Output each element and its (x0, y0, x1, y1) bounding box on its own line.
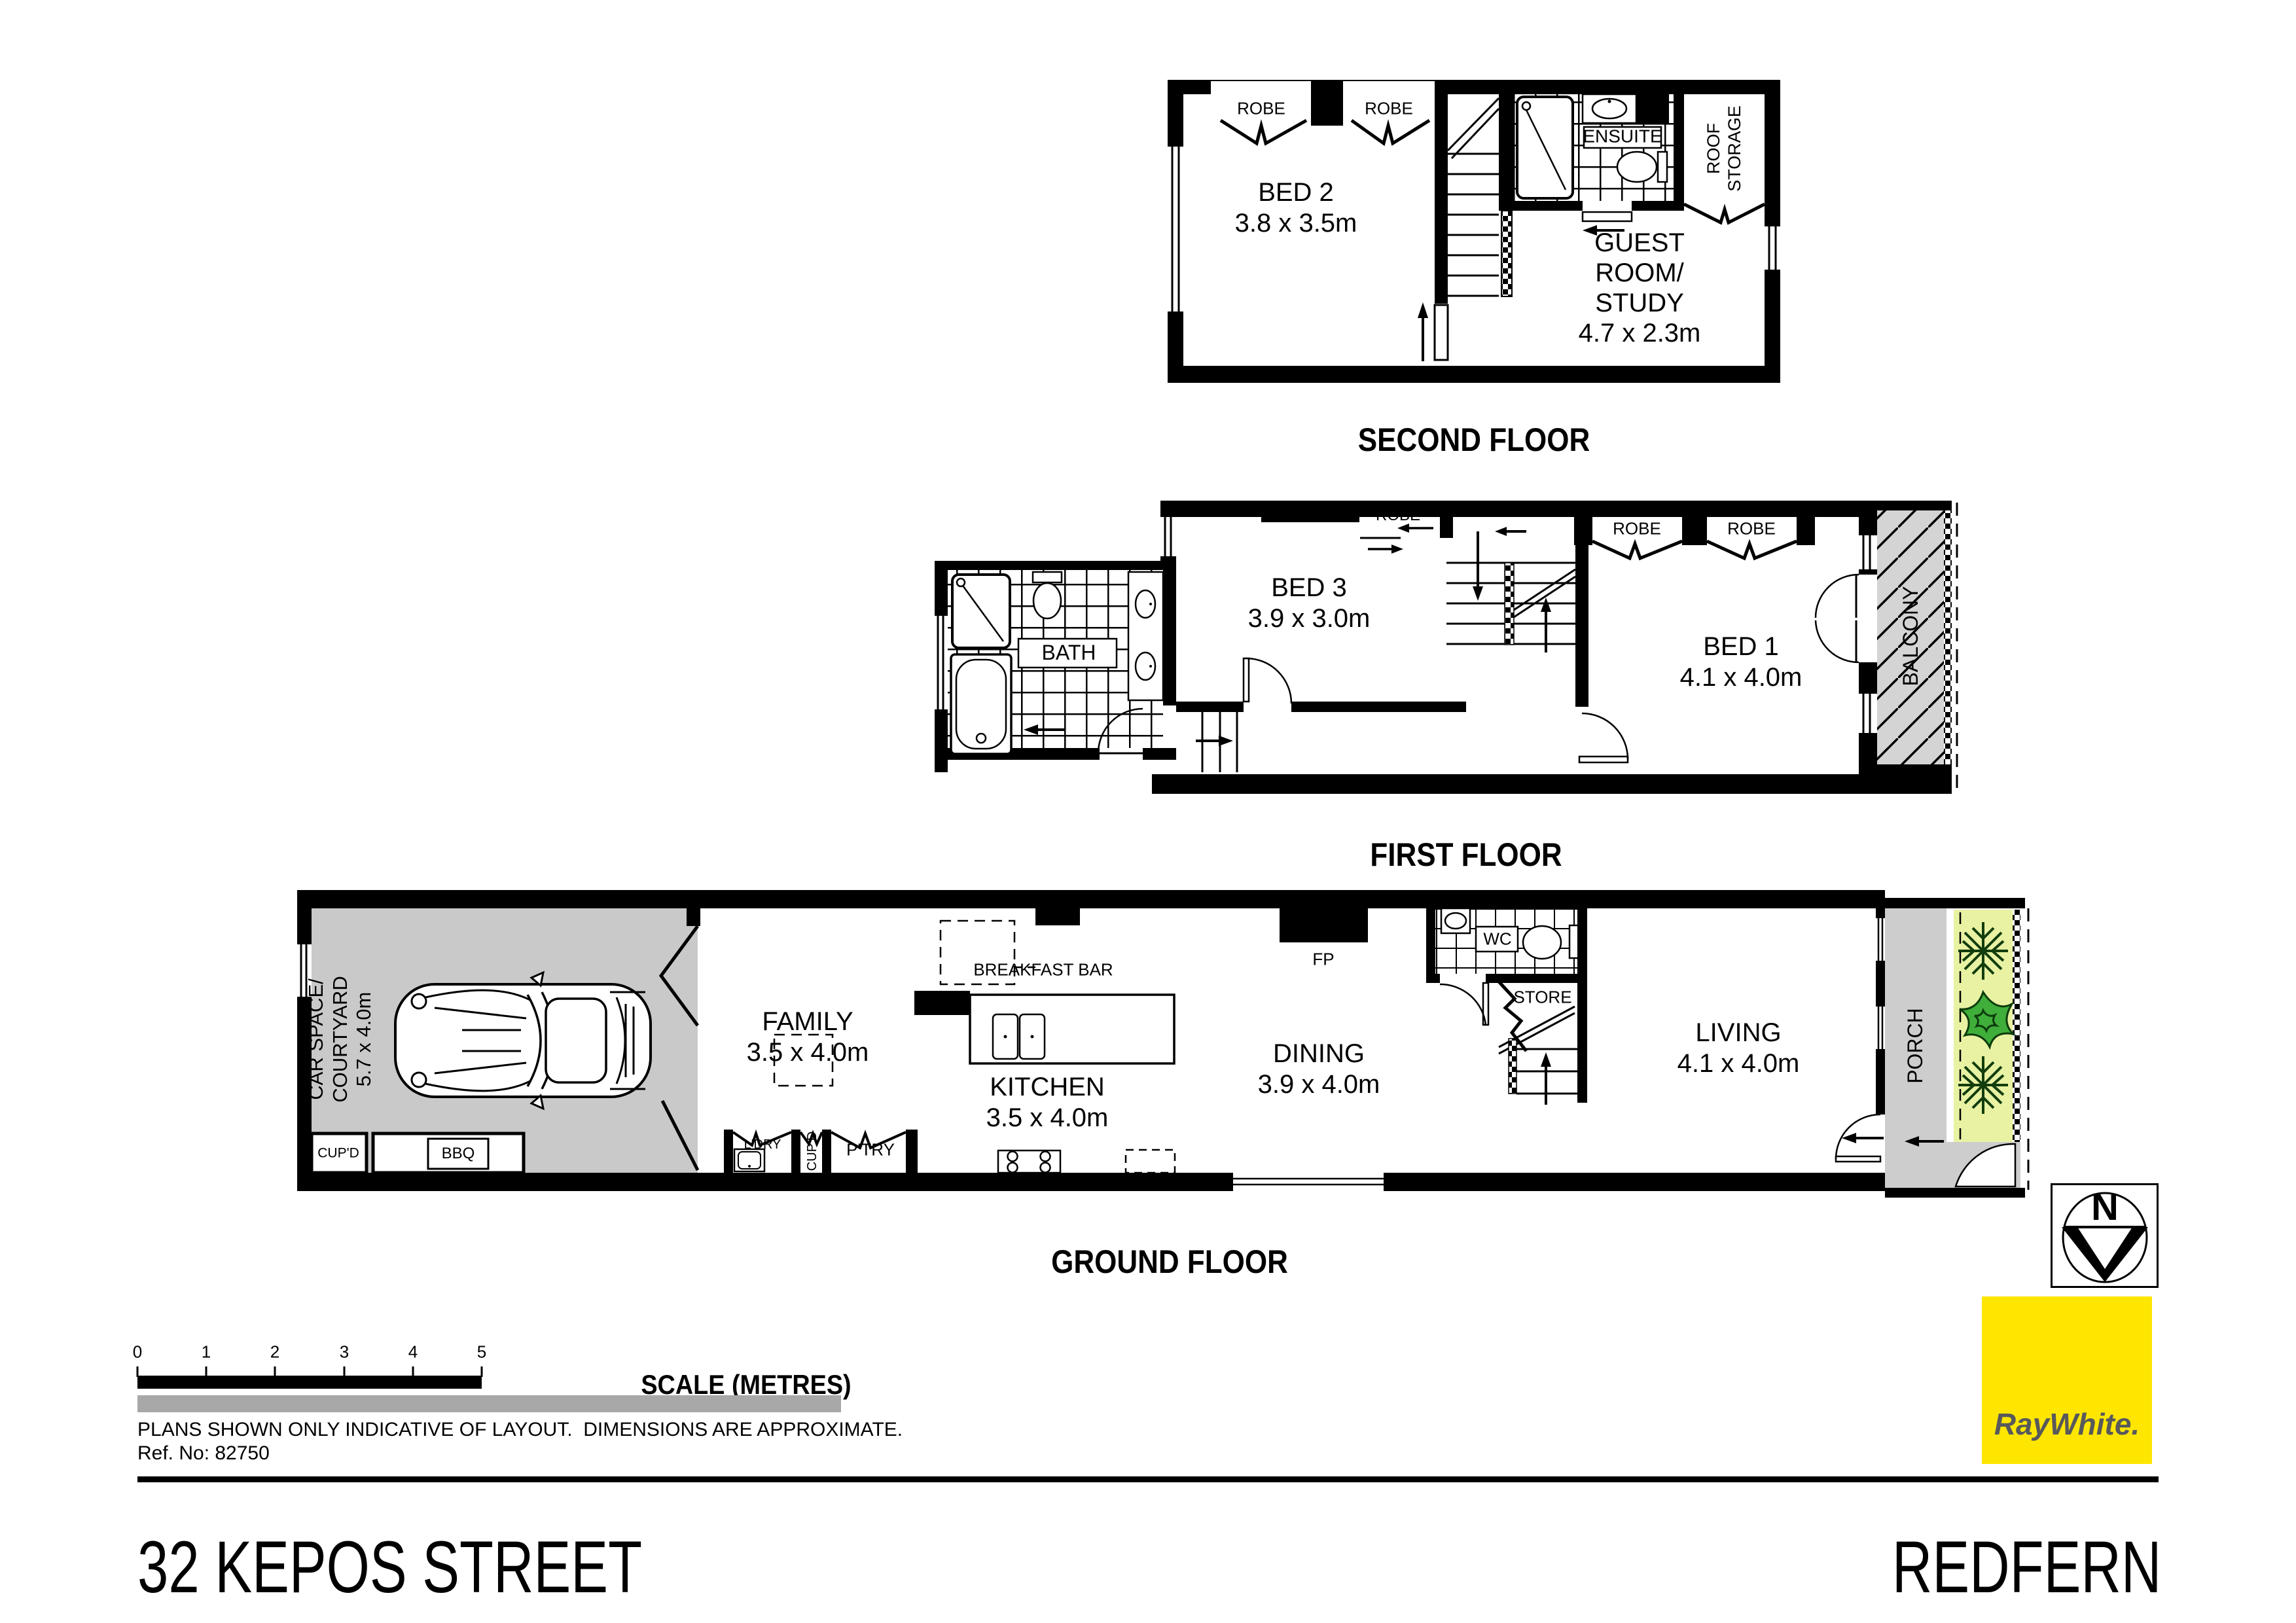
ff-window-left-upper (1160, 517, 1176, 556)
sf-ensuite (1499, 94, 1684, 236)
sf-bed2-label: BED 2 3.8 x 3.5m (1235, 177, 1357, 239)
car-icon (395, 972, 651, 1109)
ground-floor-title: GROUND FLOOR (1051, 1243, 1288, 1281)
gf-cupboard-left-label: CUP'D (317, 1146, 359, 1162)
bed1-window-lower (1859, 694, 1877, 733)
gf-car-space-label: CAR SPACE/ COURTYARD 5.7 x 4.0m (304, 976, 376, 1102)
gf-porch-label: PORCH (1903, 1008, 1928, 1084)
gf-garden (1946, 908, 2028, 1190)
bed1-window-upper (1859, 535, 1877, 569)
floorplan-page: ROBE ROBE ENSUITE ROOF STORAGE BED 2 3.8… (0, 0, 2296, 1623)
disclaimer-line1: PLANS SHOWN ONLY INDICATIVE OF LAYOUT. D… (137, 1419, 903, 1441)
ff-bed3-robe-label: ROBE (1376, 507, 1420, 525)
gf-laundry-label: L'DRY (744, 1137, 781, 1153)
gf-store-label: STORE (1513, 988, 1571, 1008)
property-suburb: REDFERN (1892, 1525, 2161, 1609)
ff-bed1-label: BED 1 4.1 x 4.0m (1680, 632, 1803, 693)
disclaimer-line2: Ref. No: 82750 (137, 1442, 270, 1465)
toilet-icon (1658, 152, 1667, 182)
gf-family-label: FAMILY 3.5 x 4.0m (747, 1007, 869, 1068)
sf-window-right (1765, 223, 1780, 274)
ff-hall (1196, 712, 1237, 772)
gray-separator-bar (137, 1395, 841, 1412)
gf-pantry-label: P'TRY (846, 1140, 895, 1160)
sf-wall-stub (1311, 81, 1343, 126)
toilet-icon (1523, 926, 1561, 959)
sf-robe-left-label: ROBE (1237, 99, 1285, 119)
gf-dining-label: DINING 3.9 x 4.0m (1258, 1039, 1380, 1100)
first-floor-title: FIRST FLOOR (1370, 836, 1562, 874)
bathtub-icon (951, 654, 1011, 754)
ff-balcony-label: BALCONY (1899, 586, 1924, 687)
scale-ruler-bar (128, 1365, 494, 1391)
gf-cupboard-mid-label: CUP'D (805, 1132, 821, 1171)
ff-walls (1152, 501, 1952, 794)
ff-bed3-label: BED 3 3.9 x 3.0m (1248, 573, 1371, 634)
stove-icon (998, 1150, 1060, 1173)
scale-tick-2: 2 (270, 1342, 279, 1363)
sf-window-left (1168, 142, 1183, 316)
gf-breakfast-bar-label: BREAKFAST BAR (973, 960, 1113, 980)
ff-bed1-robe-left-label: ROBE (1613, 519, 1661, 539)
balcony-french-doors (1816, 575, 1859, 662)
sf-guest-label: GUEST ROOM/ STUDY 4.7 x 2.3m (1579, 228, 1701, 348)
gf-wc-label: WC (1483, 929, 1511, 950)
ff-bath-label: BATH (1042, 641, 1096, 666)
gf-kitchen-label: KITCHEN 3.5 x 4.0m (986, 1072, 1109, 1133)
north-letter: N (2091, 1185, 2119, 1230)
gf-living (1836, 908, 1885, 1162)
sf-roof-storage-label: ROOF STORAGE (1704, 105, 1746, 192)
ff-bed1-robe-right-label: ROBE (1727, 519, 1776, 539)
fireplace (1280, 908, 1368, 942)
toilet-icon (1033, 572, 1062, 582)
sf-ensuite-label: ENSUITE (1583, 125, 1662, 147)
ff-bath (935, 561, 1176, 772)
property-address: 32 KEPOS STREET (137, 1525, 642, 1609)
sf-robe-right-label: ROBE (1365, 99, 1413, 119)
north-compass: N (2051, 1183, 2159, 1288)
scale-tick-3: 3 (340, 1342, 349, 1363)
breakfast-island (914, 991, 1174, 1063)
raywhite-logo-text: RayWhite. (1994, 1406, 2140, 1442)
scale-tick-1: 1 (202, 1342, 211, 1363)
scale-tick-4: 4 (408, 1342, 418, 1363)
scale-tick-5: 5 (477, 1342, 486, 1363)
scale-tick-0: 0 (133, 1342, 142, 1363)
gf-living-label: LIVING 4.1 x 4.0m (1677, 1018, 1800, 1079)
sf-stairs (1418, 94, 1514, 361)
raywhite-logo: RayWhite. (1982, 1296, 2152, 1464)
footer-divider (137, 1476, 2159, 1482)
gf-bbq-label: BBQ (442, 1145, 475, 1163)
second-floor-title: SECOND FLOOR (1358, 421, 1590, 459)
gf-fp-label: FP (1312, 950, 1334, 970)
dishwasher (1126, 1150, 1175, 1173)
ff-stairs (1446, 512, 1588, 707)
